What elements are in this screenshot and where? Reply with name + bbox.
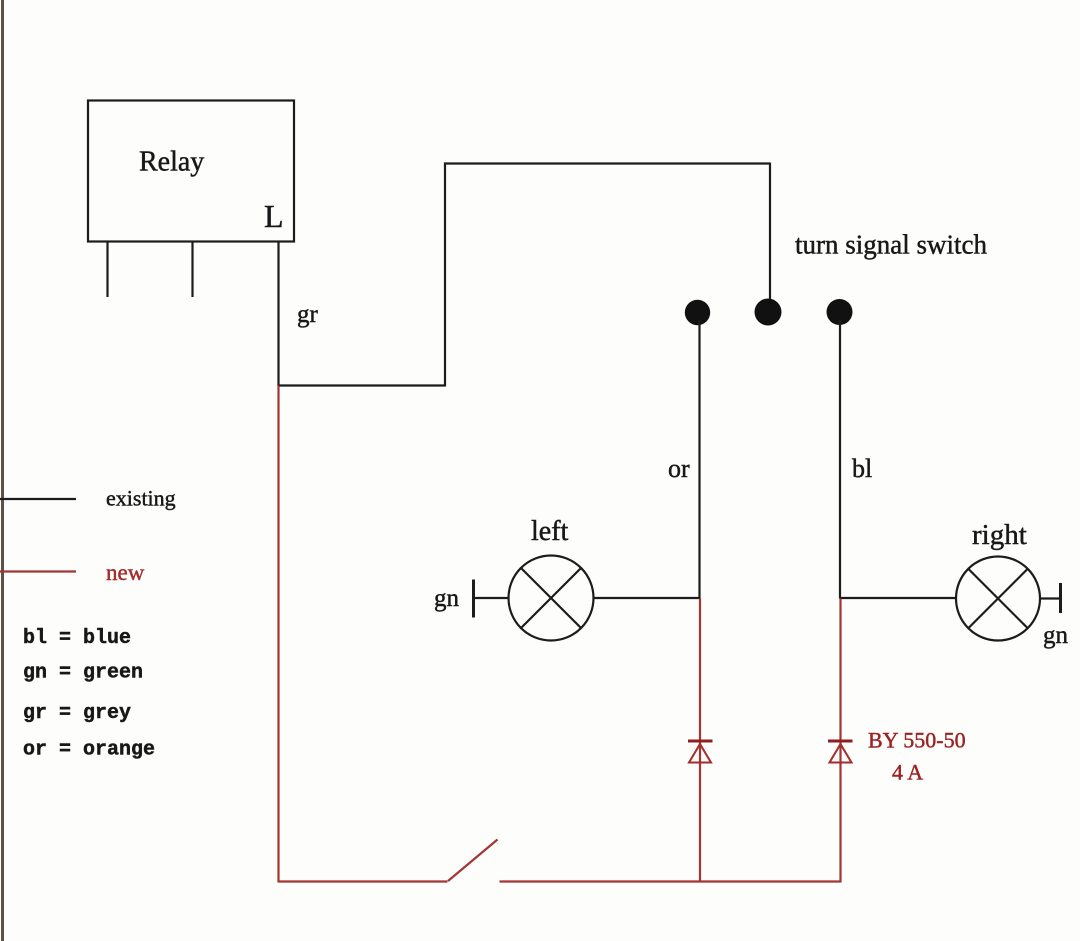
svg-text:gn: gn xyxy=(434,585,460,612)
svg-text:gn = green: gn = green xyxy=(23,662,143,685)
svg-text:gr = grey: gr = grey xyxy=(23,702,131,725)
svg-text:right: right xyxy=(972,519,1027,551)
svg-text:turn signal switch: turn signal switch xyxy=(795,230,987,260)
svg-text:left: left xyxy=(531,516,569,547)
svg-text:gr: gr xyxy=(297,301,319,328)
svg-text:bl = blue: bl = blue xyxy=(23,627,131,650)
svg-text:or: or xyxy=(668,454,690,483)
svg-text:4 A: 4 A xyxy=(892,760,923,785)
svg-text:L: L xyxy=(264,198,284,234)
svg-text:BY 550-50: BY 550-50 xyxy=(868,728,966,753)
svg-text:or = orange: or = orange xyxy=(23,739,155,762)
svg-text:new: new xyxy=(106,560,145,585)
svg-text:Relay: Relay xyxy=(139,147,204,178)
svg-text:gn: gn xyxy=(1043,622,1069,649)
svg-text:existing: existing xyxy=(106,486,176,511)
svg-text:bl: bl xyxy=(852,454,872,483)
